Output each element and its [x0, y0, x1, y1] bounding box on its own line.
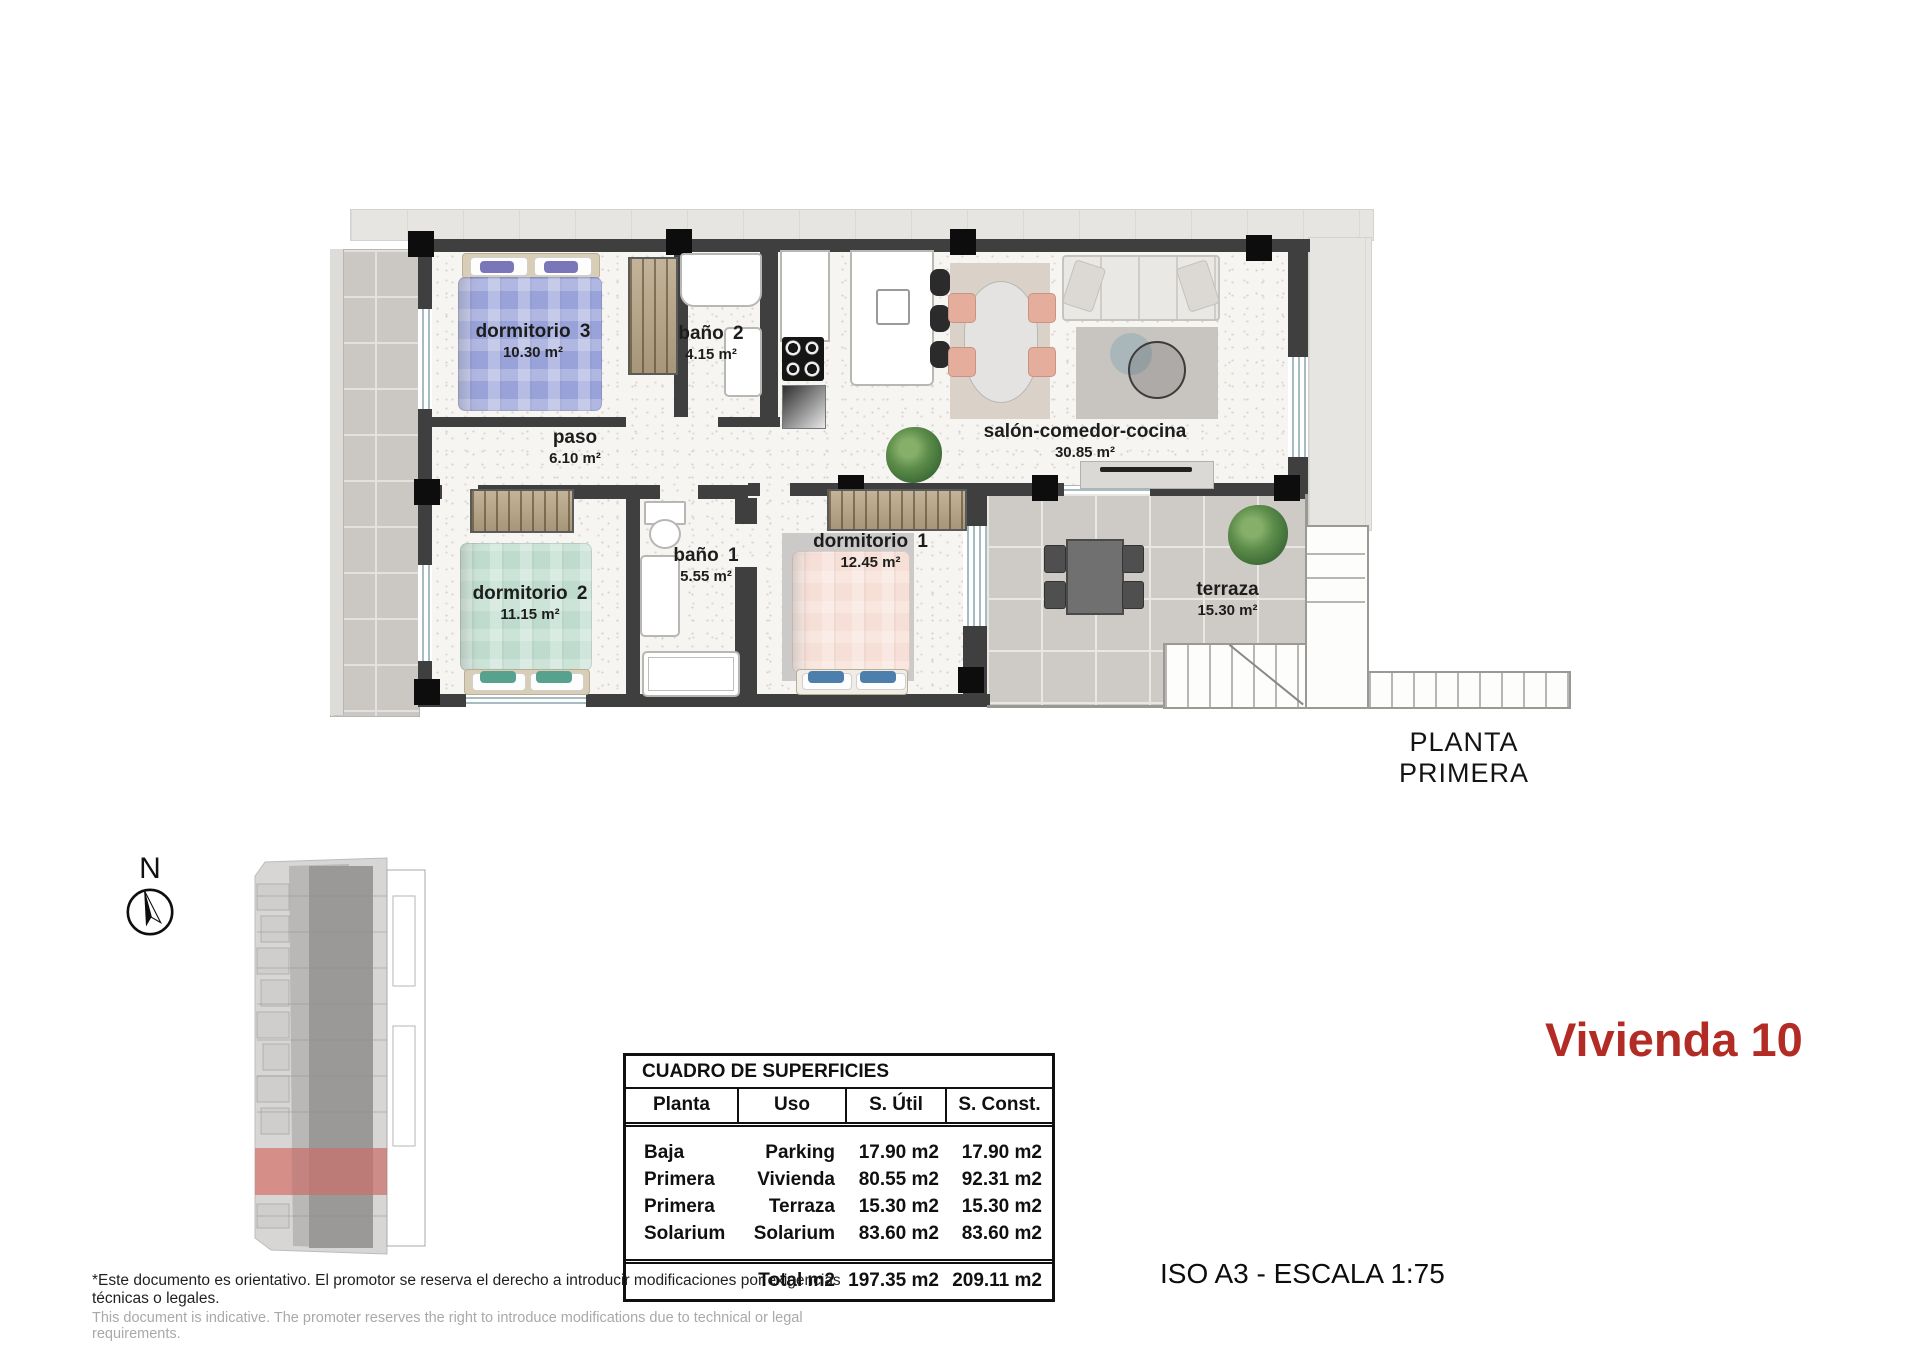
- island-sink: [876, 289, 910, 325]
- pillar: [950, 229, 976, 255]
- pillar: [1274, 475, 1300, 501]
- dining-chair: [948, 347, 976, 377]
- bathtub: [680, 253, 762, 307]
- wall-dorm2-bano1: [626, 498, 640, 694]
- step-line: [1307, 553, 1365, 555]
- wall-bano1-dorm1-a: [735, 498, 757, 524]
- table-row: SolariumSolarium 83.60 m283.60 m2: [626, 1220, 1052, 1247]
- dorm3-cushion: [544, 261, 578, 273]
- wall-paso-south-c: [698, 485, 748, 499]
- bar-stool: [930, 269, 950, 296]
- room-label-dorm3: dormitorio 3 10.30 m²: [448, 321, 618, 362]
- room-label-paso: paso 6.10 m²: [505, 427, 645, 468]
- column-header: S. Const.: [947, 1089, 1052, 1122]
- window-dorm2-left: [418, 565, 432, 661]
- room-label-bano1: baño 1 5.55 m²: [646, 545, 766, 586]
- terrace-chair: [1044, 545, 1066, 573]
- north-label: N: [122, 852, 178, 886]
- site-plan-diagram: [237, 856, 432, 1256]
- coffee-table: [1128, 341, 1186, 399]
- column-header: Uso: [739, 1089, 847, 1122]
- window-dorm2-bottom: [466, 694, 586, 707]
- surfaces-table-header: Planta Uso S. Útil S. Const.: [626, 1089, 1052, 1127]
- table-row: PrimeraVivienda 80.55 m292.31 m2: [626, 1166, 1052, 1193]
- surfaces-table-title: CUADRO DE SUPERFICIES: [626, 1056, 1052, 1089]
- terrace-chair: [1122, 581, 1144, 609]
- pillar: [1032, 475, 1058, 501]
- surfaces-table-body: BajaParking 17.90 m217.90 m2 PrimeraVivi…: [626, 1127, 1052, 1259]
- wall-dorm1-north-a: [748, 483, 760, 496]
- disclaimer-spanish: *Este documento es orientativo. El promo…: [92, 1272, 872, 1308]
- wall-dorm3-south-b: [718, 417, 780, 427]
- terrace-stairs: [1163, 643, 1307, 709]
- dorm1-cushion: [860, 671, 896, 683]
- window-dorm3-left: [418, 309, 432, 409]
- disclaimer-english: This document is indicative. The promote…: [92, 1310, 872, 1342]
- dorm2-cushion: [536, 671, 572, 683]
- exterior-paving-top: [350, 209, 1374, 241]
- dorm1-cushion: [808, 671, 844, 683]
- room-label-salon: salón-comedor-cocina 30.85 m²: [980, 421, 1190, 462]
- terrace-table: [1066, 539, 1124, 615]
- plan-sheet: dormitorio 3 10.30 m² baño 2 4.15 m²: [0, 0, 1920, 1357]
- room-label-bano2: baño 2 4.15 m²: [656, 323, 766, 364]
- pillar: [414, 679, 440, 705]
- dorm2-wardrobe: [470, 489, 574, 533]
- disclaimer: *Este documento es orientativo. El promo…: [92, 1272, 872, 1342]
- dining-chair: [1028, 347, 1056, 377]
- north-indicator: N: [122, 852, 178, 943]
- pillar: [958, 667, 984, 693]
- dining-chair: [948, 293, 976, 323]
- kitchen-counter: [780, 250, 830, 342]
- tv-icon: [1100, 467, 1192, 472]
- room-label-dorm2: dormitorio 2 11.15 m²: [455, 583, 605, 624]
- scale-note: ISO A3 - ESCALA 1:75: [1160, 1258, 1445, 1290]
- cooktop: [782, 337, 824, 381]
- window-salon-right: [1288, 357, 1308, 457]
- surfaces-table: CUADRO DE SUPERFICIES Planta Uso S. Útil…: [623, 1053, 1055, 1302]
- wall-dorm3-south-a: [430, 417, 626, 427]
- floor-plan: dormitorio 3 10.30 m² baño 2 4.15 m²: [330, 235, 1580, 720]
- step-line: [1307, 601, 1365, 603]
- table-row: PrimeraTerraza 15.30 m215.30 m2: [626, 1193, 1052, 1220]
- column-header: Planta: [626, 1089, 739, 1122]
- dorm3-cushion: [480, 261, 514, 273]
- exterior-stairs: [1367, 671, 1571, 709]
- sofa: [1062, 255, 1220, 321]
- bar-stool: [930, 305, 950, 332]
- tv-sideboard: [1080, 461, 1214, 489]
- table-row: BajaParking 17.90 m217.90 m2: [626, 1139, 1052, 1166]
- kitchen-appliance: [782, 385, 826, 429]
- dorm1-wardrobe: [827, 489, 967, 531]
- pillar: [414, 479, 440, 505]
- terrace-chair: [1044, 581, 1066, 609]
- room-label-dorm1: dormitorio 1 12.45 m²: [798, 531, 943, 572]
- terrace-chair: [1122, 545, 1144, 573]
- total-const: 209.11 m2: [947, 1270, 1052, 1292]
- neighbour-edge-band: [330, 249, 344, 715]
- plan-title: PLANTA PRIMERA: [1350, 727, 1578, 789]
- shower: [642, 651, 740, 697]
- dorm2-cushion: [480, 671, 516, 683]
- unit-title: Vivienda 10: [1545, 1012, 1803, 1067]
- exterior-paving-right: [1308, 237, 1372, 531]
- column-header: S. Útil: [847, 1089, 947, 1122]
- window-dorm1-terrace: [963, 526, 987, 626]
- pillar: [408, 231, 434, 257]
- wall-salon-right-a: [1288, 239, 1308, 357]
- bar-stool: [930, 341, 950, 368]
- pillar: [666, 229, 692, 255]
- compass-icon: [124, 886, 176, 938]
- room-label-terraza: terraza 15.30 m²: [1160, 579, 1295, 620]
- dining-chair: [1028, 293, 1056, 323]
- pillar: [1246, 235, 1272, 261]
- step-line: [1307, 577, 1365, 579]
